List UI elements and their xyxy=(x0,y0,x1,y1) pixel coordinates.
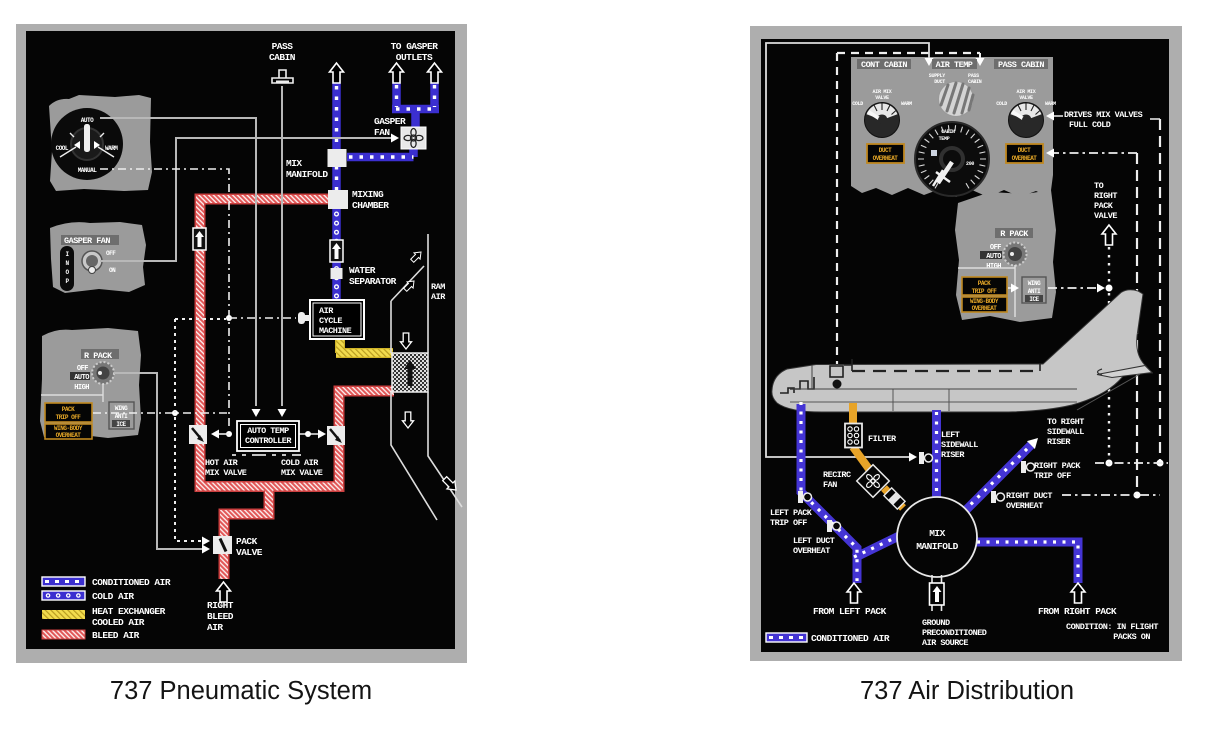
svg-text:CABIN: CABIN xyxy=(968,79,982,85)
svg-text:WING-BODY: WING-BODY xyxy=(54,425,83,432)
svg-text:CABIN: CABIN xyxy=(941,129,955,135)
svg-text:SIDEWALL: SIDEWALL xyxy=(941,440,978,450)
svg-text:R PACK: R PACK xyxy=(1000,229,1029,239)
svg-text:PACK: PACK xyxy=(236,536,258,547)
svg-text:OVERHEAT: OVERHEAT xyxy=(873,155,899,162)
svg-text:TO RIGHT: TO RIGHT xyxy=(1047,417,1084,427)
svg-text:OUTLETS: OUTLETS xyxy=(396,52,433,63)
svg-text:COLD AIR: COLD AIR xyxy=(281,458,319,468)
svg-text:CHAMBER: CHAMBER xyxy=(352,200,389,211)
svg-text:COLD AIR: COLD AIR xyxy=(92,591,134,602)
svg-text:RIGHT DUCT: RIGHT DUCT xyxy=(1006,491,1052,501)
svg-text:WARM: WARM xyxy=(105,145,118,152)
svg-text:HOT AIR: HOT AIR xyxy=(205,458,239,468)
svg-text:OVERHEAT: OVERHEAT xyxy=(1012,155,1038,162)
svg-text:TRIP OFF: TRIP OFF xyxy=(770,518,807,528)
svg-text:RISER: RISER xyxy=(1047,437,1071,447)
svg-text:200: 200 xyxy=(966,161,974,167)
svg-text:OFF: OFF xyxy=(990,244,1001,252)
svg-text:AIR: AIR xyxy=(319,306,334,316)
svg-text:COOL: COOL xyxy=(56,145,69,152)
svg-text:DUCT: DUCT xyxy=(1018,147,1031,154)
svg-text:VALVE: VALVE xyxy=(1019,95,1033,101)
svg-text:PACK: PACK xyxy=(62,406,75,413)
svg-text:ICE: ICE xyxy=(1029,296,1039,303)
svg-text:737 Pneumatic System: 737 Pneumatic System xyxy=(110,677,372,705)
svg-text:GASPER: GASPER xyxy=(374,116,406,127)
svg-text:PASS CABIN: PASS CABIN xyxy=(998,60,1044,70)
svg-text:AUTO: AUTO xyxy=(986,253,1001,261)
svg-text:MANIFOLD: MANIFOLD xyxy=(286,169,328,180)
svg-text:SEPARATOR: SEPARATOR xyxy=(349,276,397,287)
svg-text:MANUAL: MANUAL xyxy=(78,167,98,174)
svg-text:WING-BODY: WING-BODY xyxy=(970,298,999,305)
svg-text:WING: WING xyxy=(115,405,128,412)
svg-text:TRIP OFF: TRIP OFF xyxy=(56,414,82,421)
svg-text:CONT CABIN: CONT CABIN xyxy=(861,60,907,70)
svg-text:ANTI: ANTI xyxy=(115,413,128,420)
svg-text:ON: ON xyxy=(109,267,116,274)
svg-text:MACHINE: MACHINE xyxy=(319,326,352,336)
svg-text:OFF: OFF xyxy=(106,250,116,257)
svg-text:CONTROLLER: CONTROLLER xyxy=(245,436,292,446)
svg-text:LEFT: LEFT xyxy=(941,430,960,440)
svg-text:MANIFOLD: MANIFOLD xyxy=(916,541,958,552)
svg-text:LEFT DUCT: LEFT DUCT xyxy=(793,536,835,546)
svg-text:AIR TEMP: AIR TEMP xyxy=(936,60,973,70)
svg-text:TRIP OFF: TRIP OFF xyxy=(972,288,998,295)
svg-text:OVERHEAT: OVERHEAT xyxy=(793,546,830,556)
svg-text:MIX VALVE: MIX VALVE xyxy=(281,468,323,478)
svg-text:WARM: WARM xyxy=(1045,101,1056,107)
svg-text:OVERHEAT: OVERHEAT xyxy=(56,432,82,439)
svg-text:COLD: COLD xyxy=(852,101,863,107)
svg-text:VALVE: VALVE xyxy=(236,547,263,558)
svg-text:ICE: ICE xyxy=(116,421,126,428)
svg-text:OVERHEAT: OVERHEAT xyxy=(1006,501,1043,511)
svg-text:AUTO TEMP: AUTO TEMP xyxy=(247,426,289,436)
svg-text:DRIVES MIX VALVES: DRIVES MIX VALVES xyxy=(1064,110,1143,120)
svg-text:CABIN: CABIN xyxy=(269,52,296,63)
svg-text:FULL COLD: FULL COLD xyxy=(1069,120,1111,130)
svg-text:HIGH: HIGH xyxy=(986,263,1001,271)
svg-text:RIGHT: RIGHT xyxy=(1094,191,1117,201)
svg-text:AUTO: AUTO xyxy=(81,117,94,124)
svg-text:AIR: AIR xyxy=(431,292,446,302)
svg-text:VALVE: VALVE xyxy=(1094,211,1117,221)
svg-text:HIGH: HIGH xyxy=(74,384,89,392)
svg-text:VALVE: VALVE xyxy=(875,95,889,101)
svg-text:R PACK: R PACK xyxy=(84,351,113,361)
svg-text:GROUND: GROUND xyxy=(922,618,950,628)
svg-text:RAM: RAM xyxy=(431,282,445,292)
svg-text:MIX VALVE: MIX VALVE xyxy=(205,468,247,478)
svg-text:RIGHT: RIGHT xyxy=(207,600,234,611)
svg-text:TRIP OFF: TRIP OFF xyxy=(1034,471,1071,481)
svg-text:MIX: MIX xyxy=(929,528,945,539)
svg-text:MIXING: MIXING xyxy=(352,189,384,200)
svg-text:HEAT EXCHANGER: HEAT EXCHANGER xyxy=(92,606,166,617)
svg-text:PRECONDITIONED: PRECONDITIONED xyxy=(922,628,987,638)
svg-text:CONDITIONED AIR: CONDITIONED AIR xyxy=(811,633,890,644)
svg-text:BLEED AIR: BLEED AIR xyxy=(92,630,140,641)
svg-text:TO: TO xyxy=(1094,181,1104,191)
svg-text:AUTO: AUTO xyxy=(74,374,89,382)
svg-text:AIR: AIR xyxy=(207,622,223,633)
svg-text:OVERHEAT: OVERHEAT xyxy=(972,305,998,312)
svg-text:OFF: OFF xyxy=(77,365,88,373)
svg-text:TEMP: TEMP xyxy=(939,136,950,142)
svg-text:CYCLE: CYCLE xyxy=(319,316,342,326)
svg-text:737 Air Distribution: 737 Air Distribution xyxy=(860,677,1074,705)
svg-text:COOLED AIR: COOLED AIR xyxy=(92,617,145,628)
svg-text:SIDEWALL: SIDEWALL xyxy=(1047,427,1084,437)
svg-text:BLEED: BLEED xyxy=(207,611,234,622)
svg-text:PACK: PACK xyxy=(1094,201,1114,211)
svg-text:LEFT PACK: LEFT PACK xyxy=(770,508,813,518)
svg-text:PACK: PACK xyxy=(978,280,991,287)
svg-text:PASS: PASS xyxy=(272,41,294,52)
svg-text:FROM RIGHT PACK: FROM RIGHT PACK xyxy=(1038,606,1117,617)
svg-text:WARM: WARM xyxy=(901,101,912,107)
svg-text:CONDITION: IN FLIGHT: CONDITION: IN FLIGHT xyxy=(1066,622,1158,632)
svg-text:WATER: WATER xyxy=(349,265,376,276)
svg-text:RISER: RISER xyxy=(941,450,965,460)
svg-text:PACKS ON: PACKS ON xyxy=(1113,632,1150,642)
svg-text:RECIRC: RECIRC xyxy=(823,470,851,480)
svg-text:RIGHT PACK: RIGHT PACK xyxy=(1034,461,1081,471)
svg-text:DUCT: DUCT xyxy=(934,79,945,85)
svg-text:TO GASPER: TO GASPER xyxy=(391,41,439,52)
svg-text:DUCT: DUCT xyxy=(879,147,892,154)
svg-text:CONDITIONED AIR: CONDITIONED AIR xyxy=(92,577,171,588)
svg-text:WING: WING xyxy=(1028,280,1041,287)
svg-text:MIX: MIX xyxy=(286,158,302,169)
svg-text:COLD: COLD xyxy=(996,101,1007,107)
svg-text:GASPER FAN: GASPER FAN xyxy=(64,236,110,246)
svg-text:FAN: FAN xyxy=(374,127,390,138)
svg-text:FILTER: FILTER xyxy=(868,434,897,444)
svg-text:ANTI: ANTI xyxy=(1028,288,1041,295)
svg-text:FROM LEFT PACK: FROM LEFT PACK xyxy=(813,606,887,617)
svg-text:FAN: FAN xyxy=(823,480,837,490)
svg-text:AIR SOURCE: AIR SOURCE xyxy=(922,638,968,648)
